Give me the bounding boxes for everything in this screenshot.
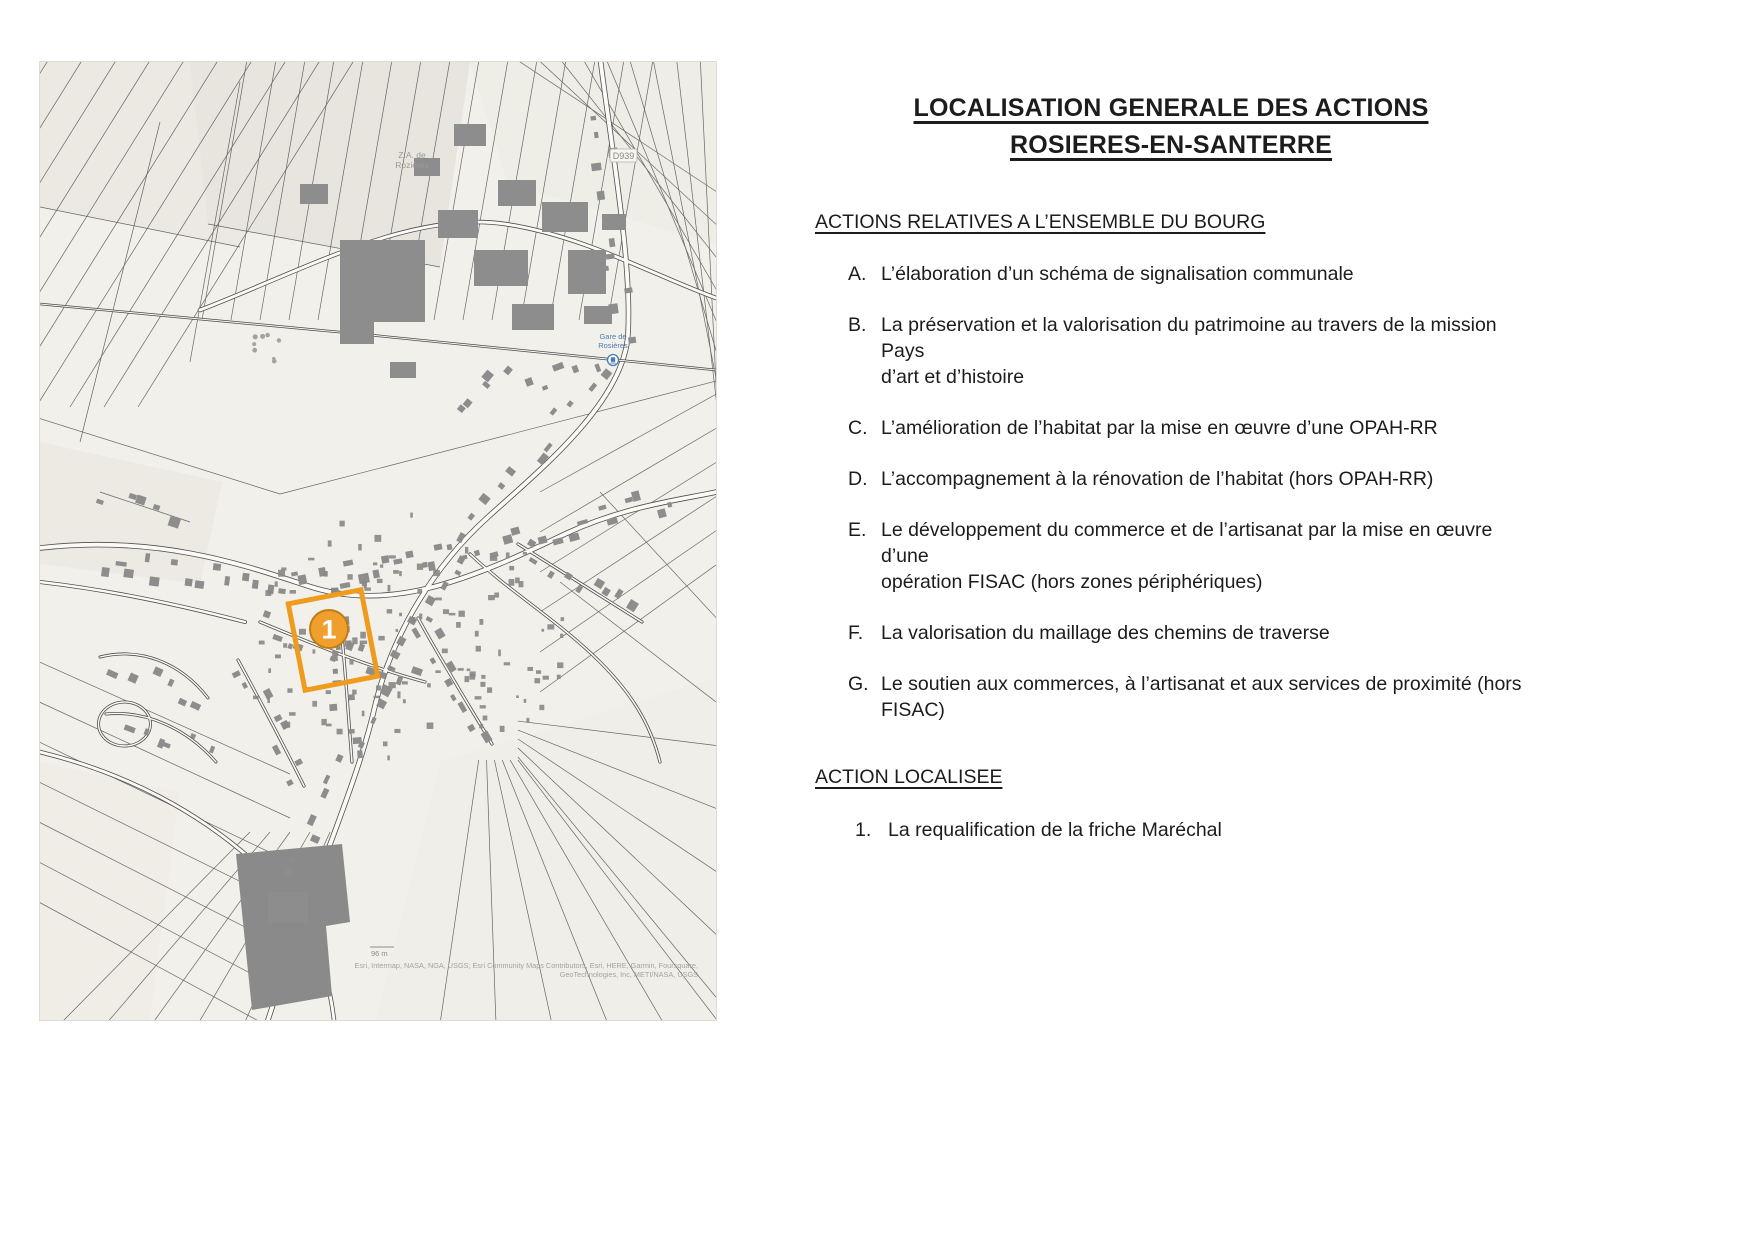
- item-text: La valorisation du maillage des chemins …: [881, 620, 1527, 646]
- map-attribution-line1: Esri, Intermap, NASA, NGA, USGS; Esri Co…: [355, 961, 698, 970]
- item-text: La préservation et la valorisation du pa…: [881, 312, 1527, 364]
- list-item: A. L’élaboration d’un schéma de signalis…: [848, 261, 1527, 287]
- list-item: D. L’accompagnement à la rénovation de l…: [848, 466, 1527, 492]
- scale-label: 96 m: [371, 949, 388, 958]
- list-item: E. Le développement du commerce et de l’…: [848, 517, 1527, 595]
- route-shield-text: D939: [613, 151, 635, 161]
- za-label-line2: Rozières: [395, 160, 429, 170]
- map-canvas: 1 Z.A. de Rozières D939 Gare de Rosières…: [40, 62, 716, 1020]
- item-label: G.: [848, 671, 881, 723]
- item-label: A.: [848, 261, 881, 287]
- text-column: LOCALISATION GENERALE DES ACTIONS ROSIER…: [815, 0, 1527, 1240]
- item-label: C.: [848, 415, 881, 441]
- map-attribution-line2: GeoTechnologies, Inc, METI/NASA, USGS: [560, 970, 698, 979]
- station-label-line1: Gare de: [599, 332, 626, 341]
- list-item: 1. La requalification de la friche Maréc…: [855, 817, 1527, 843]
- item-text: Le développement du commerce et de l’art…: [881, 517, 1527, 569]
- page-title: LOCALISATION GENERALE DES ACTIONS ROSIER…: [815, 90, 1527, 164]
- actions-list-bourg: A. L’élaboration d’un schéma de signalis…: [848, 261, 1527, 748]
- item-text: FISAC): [881, 697, 1527, 723]
- list-item: G. Le soutien aux commerces, à l’artisan…: [848, 671, 1527, 723]
- station-label-line2: Rosières: [598, 341, 628, 350]
- item-text: L’élaboration d’un schéma de signalisati…: [881, 261, 1527, 287]
- item-text: L’accompagnement à la rénovation de l’ha…: [881, 466, 1527, 492]
- list-item: C. L’amélioration de l’habitat par la mi…: [848, 415, 1527, 441]
- list-item: F. La valorisation du maillage des chemi…: [848, 620, 1527, 646]
- page-title-line2: ROSIERES-EN-SANTERRE: [1010, 131, 1332, 159]
- item-text: La requalification de la friche Maréchal: [888, 817, 1527, 843]
- za-label-line1: Z.A. de: [398, 150, 426, 160]
- actions-list-localisee: 1. La requalification de la friche Maréc…: [855, 817, 1527, 868]
- item-text: L’amélioration de l’habitat par la mise …: [881, 415, 1527, 441]
- section-heading-localisee: ACTION LOCALISEE: [815, 766, 1002, 789]
- town-map: 1 Z.A. de Rozières D939 Gare de Rosières…: [40, 62, 716, 1020]
- section-heading-bourg: ACTIONS RELATIVES A L’ENSEMBLE DU BOURG: [815, 211, 1265, 234]
- train-station-icon: [608, 355, 619, 366]
- item-label: B.: [848, 312, 881, 390]
- item-label: F.: [848, 620, 881, 646]
- item-label: 1.: [855, 817, 888, 843]
- document-page: 1 Z.A. de Rozières D939 Gare de Rosières…: [0, 0, 1755, 1240]
- list-item: B. La préservation et la valorisation du…: [848, 312, 1527, 390]
- item-text: opération FISAC (hors zones périphérique…: [881, 569, 1527, 595]
- item-text: d’art et d’histoire: [881, 364, 1527, 390]
- action-number-text: 1: [321, 615, 336, 645]
- page-title-line1: LOCALISATION GENERALE DES ACTIONS: [914, 94, 1429, 122]
- item-text: Le soutien aux commerces, à l’artisanat …: [881, 671, 1527, 697]
- item-label: E.: [848, 517, 881, 595]
- item-label: D.: [848, 466, 881, 492]
